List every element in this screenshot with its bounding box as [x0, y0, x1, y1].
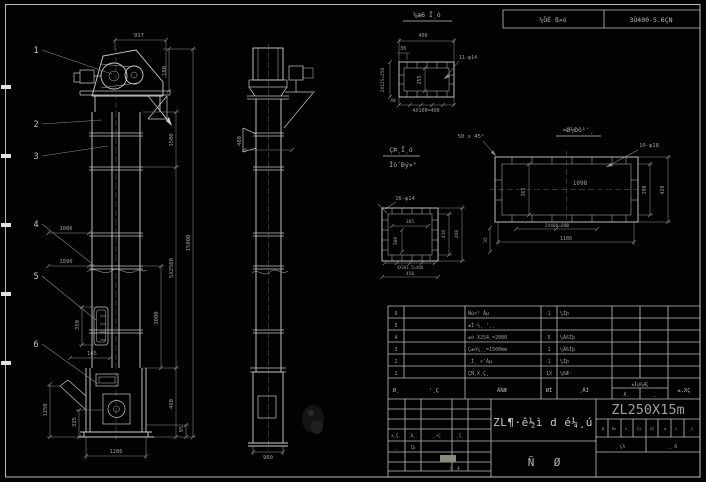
dim-3000: 3000 — [154, 311, 160, 324]
bom-header-weight: ±Ì¼X¼ÆÇ — [632, 382, 649, 388]
tb-right-cell: ¸g — [662, 426, 667, 431]
bom-desc: ±ó X254¸=2000 — [468, 334, 507, 341]
tb-left-label: ¸Ð¸¸ — [408, 433, 418, 438]
top-info-table: ¼ÖÈ ß»ó 3Ù400-5.6ÇN — [503, 10, 700, 28]
detail-b-title-2: Īò´Ðý×° — [389, 160, 416, 169]
dim-a-255: 255 — [417, 75, 423, 84]
dim-1286: 1286 — [109, 449, 122, 455]
frame-fold-ticks — [1, 87, 11, 363]
dim-325: 325 — [72, 417, 78, 427]
bom-desc: ¸Ì¸ ×'Äµ — [468, 358, 492, 365]
bom-row: 4 ±ó X254¸=2000 5 ¼Ä6Íþ — [394, 333, 575, 341]
balloon-4: 4 — [33, 220, 38, 230]
tb-right-cell: ÇÈ — [650, 426, 655, 431]
bom-qty: 1 — [547, 347, 550, 353]
tb-right-cell: ±¸ — [625, 426, 630, 431]
dim-a-bottom: 4X100=400 — [412, 108, 439, 114]
tb-mid-char: Ñ — [528, 456, 535, 469]
title-block: ±¸Ç¸ ¸Ð¸¸ ¸¸×Ç ¸Ç¸ ¸¸ Íþ ¸Ç ¸Æ¸ ZL¶·ê½ì … — [388, 399, 700, 477]
dim-180: 180 — [162, 66, 168, 76]
dim-460: 460 — [169, 399, 175, 409]
tb-left-label: ±¸Ç¸ — [391, 433, 401, 438]
dim-b-460: 460 — [454, 230, 460, 238]
bom-no: 2 — [394, 359, 397, 365]
dim-c-bottom2: 1180 — [560, 236, 572, 242]
inlet-chute — [60, 380, 86, 410]
tb-left-sign: ¸Ç ¸Æ¸ — [448, 466, 462, 471]
bom-header-no: Ø¸ — [393, 387, 400, 394]
dim-b-bottom2: 450 — [406, 271, 414, 277]
tb-right-cell: Ñt — [612, 426, 617, 431]
bom-no: 1 — [394, 371, 397, 377]
boot-window — [96, 374, 118, 386]
dim-350: 350 — [75, 320, 81, 330]
dim-1500: 1500 — [169, 133, 175, 146]
dim-a-30: 30 — [400, 46, 406, 52]
detail-c-title: ¤Ø½Ðò¹'¸ — [562, 126, 593, 134]
bom-qty: 1 — [547, 359, 550, 365]
dim-a-40: 40 — [390, 98, 396, 104]
tb-right-cell: ¸Ð — [600, 426, 605, 431]
dim-5x2500: 5X2500 — [169, 258, 175, 278]
tb-right-row2-cell: ¸ ÇÁ — [615, 444, 626, 449]
dim-917: 917 — [134, 33, 144, 39]
bom-row: 1 ÇÑ¸X¸Ç¸ 1X ¼6Æ· — [394, 370, 572, 377]
bom-mat: ¼Ä6Íþ — [560, 333, 575, 341]
dim-c-190: 190 — [642, 185, 648, 194]
dim-b-410: 410 — [441, 230, 447, 238]
bom-no: 5 — [394, 323, 397, 329]
label-a-holes: 11-φ14 — [459, 55, 477, 61]
side-boot — [253, 372, 283, 443]
tb-selected-cell[interactable] — [440, 455, 456, 462]
boot-pulley — [108, 401, 125, 418]
dim-1250: 1250 — [43, 403, 49, 416]
model-number: ZL250X15m — [611, 402, 684, 418]
dim-a-left: 2X125=250 — [380, 68, 386, 93]
tb-mid-char: Ø — [554, 456, 561, 469]
bom-row: 3 Ç±ó¼¸¸=1500mm 1 ¼Ä6Íþ — [394, 345, 575, 353]
service-door — [94, 307, 108, 345]
front-view — [60, 48, 172, 440]
side-chute — [243, 128, 256, 152]
bom-desc: ±Ì·½¸ '¸¸ — [468, 322, 495, 329]
side-view: 480 960 — [237, 44, 315, 461]
dim-b-35: 35 — [483, 237, 489, 243]
bom-header-weight-total: ¸¸ — [652, 392, 657, 397]
dim-b-305: 305 — [406, 219, 414, 225]
tb-left-label: ¸Ç¸ — [456, 433, 463, 438]
dim-a-400: 400 — [418, 33, 427, 39]
dim-c-365: 365 — [521, 187, 527, 196]
bom-no: 4 — [394, 335, 397, 341]
bom-desc: ÇÑ¸X¸Ç¸ — [468, 370, 489, 377]
dim-b-bottom1: 4X101.5=406 — [397, 265, 424, 270]
title-block-middle: ZL¶·ê½ì d é¼¸ú Ñ Ø — [493, 416, 593, 469]
bom-header-name: ÄǸÆ — [497, 387, 508, 394]
dim-95: 95 — [179, 426, 185, 433]
bom-row: 6 Ñù×° Äµ 1 ¼Ìþ — [394, 310, 569, 317]
bom-header-code: '¸Ç — [429, 388, 439, 394]
label-c-holes: 10-φ18 — [639, 143, 659, 149]
dim-960: 960 — [263, 455, 273, 461]
detail-casing-section: ¤Ø½Ðò¹'¸ 50 x 45° 10-φ18 1098 365 190 42… — [458, 126, 671, 245]
balloon-1: 1 — [33, 46, 38, 56]
detail-a-title: ¼æ6 Ī¸ó — [413, 10, 440, 19]
bom-row: 5 ±Ì·½¸ '¸¸ — [394, 322, 495, 329]
bom-mat: ¼6Æ· — [560, 371, 572, 377]
tb-right-cell: ±¸ — [675, 426, 680, 431]
front-dimensions: 917 180 1500 5X2500 460 3000 15000 95 10… — [43, 33, 196, 459]
bom-desc: Ç±ó¼¸¸=1500mm — [468, 346, 507, 353]
bom-no: 3 — [394, 347, 397, 353]
detail-square-flange: ÇÞ¸Ī¸ó Īò´Ðý×° 16-φ14 305 300 410 460 4X… — [378, 145, 492, 279]
top-table-cell-1: ¼ÖÈ ß»ó — [539, 15, 566, 24]
tb-right-cell: ¸ý — [689, 426, 694, 431]
top-table-cell-2: 3Ù400-5.6ÇN — [629, 15, 672, 24]
bom-header-qty: ØÍ — [546, 386, 553, 394]
drive-pulley — [125, 66, 143, 84]
detail-b-title-1: ÇÞ¸Ī¸ó — [389, 145, 413, 154]
dim-c-420: 420 — [660, 185, 666, 194]
bom-mat: ¼Ìþ — [560, 358, 569, 365]
bom-qty: 1X — [546, 371, 552, 377]
bom-no: 6 — [394, 311, 397, 317]
bom-qty: 5 — [547, 335, 550, 341]
tb-left-label: Íþ — [411, 445, 416, 450]
bom-table: 6 Ñù×° Äµ 1 ¼Ìþ 5 ±Ì·½¸ '¸¸ 4 ±ó X254¸=2… — [388, 306, 700, 477]
dim-c-bottom1: 2X400=800 — [545, 223, 570, 229]
balloon-6: 6 — [33, 340, 38, 350]
bom-row: 2 ¸Ì¸ ×'Äµ 1 ¼Ìþ — [394, 358, 569, 365]
bom-header-weight-unit: Ǽ¸ — [624, 392, 629, 397]
detail-outlet-flange: ¼æ6 Ī¸ó 400 30 11-φ14 255 2X125=250 40 4… — [380, 10, 477, 114]
title-block-right: ZL250X15m ¸Ð Ñt ±¸ Íý ÇÈ ¸g ±¸ ¸ý ¸ ÇÁ ¸… — [600, 402, 694, 449]
dim-1090: 1090 — [59, 259, 72, 265]
tb-left-label: ¸¸×Ç — [431, 433, 441, 438]
tb-right-row2-cell: ¸¸ Ǹ — [667, 444, 678, 449]
label-b-holes: 16-φ14 — [395, 196, 416, 202]
cad-canvas: ¼ÖÈ ß»ó 3Ù400-5.6ÇN 1 2 — [0, 0, 706, 482]
tb-right-cell: Íý — [637, 426, 642, 431]
bom-header-remarks: ±,XÇ — [677, 388, 690, 394]
drawing-frame — [1, 5, 700, 478]
dim-c-1098: 1098 — [573, 180, 588, 187]
dim-b-300: 300 — [393, 237, 399, 245]
break-line — [87, 269, 147, 272]
label-c-chamfer: 50 x 45° — [458, 134, 485, 140]
bom-mat: ¼Ìþ — [560, 310, 569, 317]
balloon-5: 5 — [33, 272, 38, 282]
drawing-title: ZL¶·ê½ì d é¼¸ú — [493, 416, 593, 429]
dim-480: 480 — [237, 136, 243, 146]
bom-desc: Ñù×° Äµ — [468, 310, 489, 317]
screen-smudge — [302, 405, 324, 434]
bom-qty: 1 — [547, 311, 550, 317]
dim-1086: 1086 — [59, 226, 72, 232]
bom-header: Ø¸ '¸Ç ÄǸÆ ØÍ ¸ÄÍ ±Ì¼X¼ÆÇ Ǽ¸ ¸¸ ±,XÇ — [393, 382, 691, 397]
bom-mat: ¼Ä6Íþ — [560, 345, 575, 353]
balloon-2: 2 — [33, 120, 38, 130]
side-motor — [289, 66, 303, 80]
tb-left-label: ¸¸ — [394, 445, 399, 450]
dim-165: 165 — [87, 351, 97, 357]
dim-15000: 15000 — [186, 235, 192, 252]
bom-header-material: ¸ÄÍ — [579, 386, 589, 394]
balloon-3: 3 — [33, 152, 38, 162]
